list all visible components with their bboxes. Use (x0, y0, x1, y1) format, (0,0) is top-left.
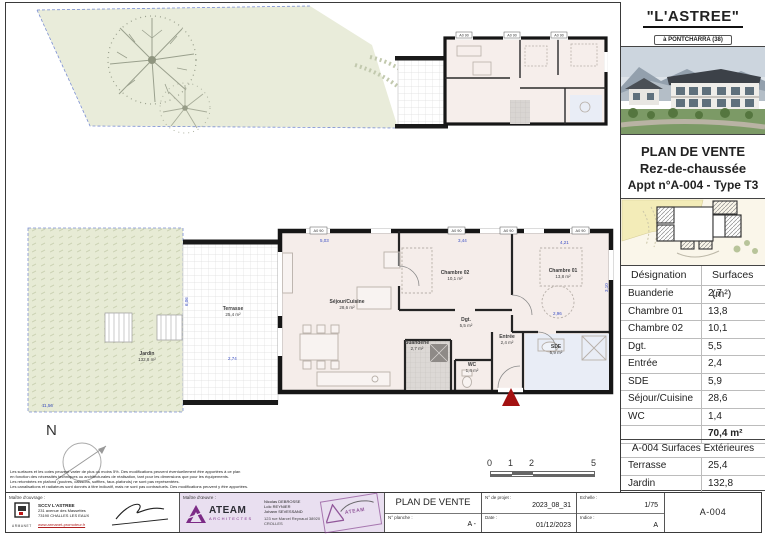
floor-plan-drawing: A0 90 A0 90 A0 90 (5, 2, 620, 492)
plan-de-vente-sheet: A0 90 A0 90 A0 90 (0, 0, 768, 540)
project-title-box: "L'ASTREE" à PONTCHARRA (38) (621, 2, 765, 47)
terrasse-area (183, 240, 278, 406)
owner-label: Maître d'ouvrage : (9, 495, 45, 500)
svg-text:A0 90: A0 90 (554, 34, 563, 38)
armanet-logo-icon (14, 502, 30, 524)
doc-title-cell: PLAN DE VENTE N° planche : A - (384, 493, 481, 532)
room-label-sejour: Séjour/Cuisine28,6 m² (307, 300, 387, 310)
dim-label: 2,96 (553, 311, 562, 316)
dim-label: 2,74 (228, 356, 237, 361)
project-title: "L'ASTREE" (643, 8, 744, 28)
exterior-table-title: A-004 Surfaces Extérieures (621, 440, 765, 458)
echelle-value: 1/75 (644, 502, 658, 509)
planche-label: N° planche : (388, 515, 413, 520)
svg-text:A0 90: A0 90 (314, 229, 324, 233)
sidebar: "L'ASTREE" à PONTCHARRA (38) (620, 2, 765, 492)
room-label-chambre02: Chambre 0210,1 m² (415, 271, 495, 281)
exterior-surfaces-table: A-004 Surfaces Extérieures Terrasse25,4 … (621, 439, 765, 491)
sheet-ref-cell: A-004 (664, 493, 761, 532)
room-label-buanderie: Buanderie2,7 m² (397, 341, 437, 351)
dim-label: 3,44 (458, 238, 467, 243)
sheet-ref: A-004 (665, 507, 761, 517)
dim-label: 3,10 (604, 283, 609, 292)
window-tag: A0 90 (500, 227, 517, 234)
architect-stamp: ATEAM (320, 493, 382, 534)
table-row: Buanderie2,7 (621, 286, 765, 304)
architect-cell: Maître d'œuvre : ATEAM ARCHITECTES Nicol… (179, 493, 384, 532)
indice-value: A (653, 522, 658, 529)
window-tag: A0 90 (456, 32, 472, 38)
building-photo (621, 47, 765, 135)
architect-names: Nicolas DEBROSSE Loïc REYNIER Johann SEV… (264, 499, 324, 526)
room-label-wc: WC1,4 m² (452, 363, 492, 373)
echelle-label: Echelle : (580, 495, 597, 500)
doc-type: PLAN DE VENTE (621, 144, 765, 159)
upper-garden (37, 6, 441, 133)
dim-label: 6,06 (184, 297, 189, 306)
project-number-cell: N° de projet : 2023_08_31 Date : 01/12/2… (481, 493, 576, 532)
projet-label: N° de projet : (485, 495, 511, 500)
room-label-sde: SDE5,9 m² (536, 345, 576, 355)
window-tag: A0 90 (310, 227, 327, 234)
room-label-dgt: Dgt.5,5 m² (446, 318, 486, 328)
table-row: Séjour/Cuisine28,6 (621, 391, 765, 409)
table-header: Désignation Surfaces (m²) (621, 266, 765, 286)
projet-value: 2023_08_31 (532, 502, 571, 509)
apartment-plan: A0 90 A0 90 A0 90 A0 90 (278, 227, 613, 406)
window-tag: A0 90 (572, 227, 589, 234)
table-row: Dgt.5,5 (621, 339, 765, 357)
scale-number: 5 (591, 458, 596, 468)
window-tag: A0 90 (504, 32, 520, 38)
room-label-chambre01: Chambre 0113,8 m² (523, 269, 603, 279)
architect-label: Maître d'œuvre : (183, 495, 216, 500)
window-tag: A0 90 (551, 32, 567, 38)
disclaimer-text: Les surfaces et les cotes peuvent varier… (10, 469, 340, 489)
upper-floor-plan: A0 90 A0 90 A0 90 (395, 32, 608, 129)
dim-label: 4,21 (560, 240, 569, 245)
table-row: Chambre 0113,8 (621, 304, 765, 322)
svg-text:A0 90: A0 90 (507, 34, 516, 38)
svg-text:A0 90: A0 90 (459, 34, 468, 38)
owner-cell: Maître d'ouvrage : ARMANET SCCV L'ASTREE… (6, 493, 179, 532)
owner-signature (110, 499, 172, 529)
date-label: Date : (485, 515, 497, 520)
scale-bar: 0 1 2 5 (483, 458, 601, 484)
scale-number: 2 (529, 458, 534, 468)
jardin-area (28, 228, 183, 412)
room-label-jardin: Jardin132,8 m² (107, 352, 187, 362)
room-label-terrasse: Terrasse25,4 m² (193, 307, 273, 317)
doc-title: PLAN DE VENTE (385, 497, 481, 508)
ateam-logo-text: ATEAM ARCHITECTES (209, 505, 253, 521)
north-label: N (46, 422, 57, 439)
scale-number: 1 (508, 458, 513, 468)
owner-url: www.armanet-promoteur.fr (38, 522, 108, 527)
apartment-ref: Appt n°A-004 - Type T3 (621, 178, 765, 192)
table-row: WC1,4 (621, 409, 765, 427)
date-value: 01/12/2023 (536, 522, 571, 529)
dim-label: 5,03 (320, 238, 329, 243)
table-row: Entrée2,4 (621, 356, 765, 374)
indice-label: Indice : (580, 515, 595, 520)
planche-value: A - (467, 521, 476, 528)
svg-text:A0 90: A0 90 (576, 229, 586, 233)
floor-name: Rez-de-chaussée (621, 161, 765, 176)
surfaces-table: Désignation Surfaces (m²) Buanderie2,7 C… (621, 266, 765, 434)
table-row: SDE5,9 (621, 374, 765, 392)
armanet-logo-text: ARMANET (12, 524, 32, 528)
ateam-logo-icon (186, 504, 206, 524)
owner-details: SCCV L'ASTREE 231 avenue des Massettes 7… (38, 503, 108, 527)
table-row: Chambre 0210,1 (621, 321, 765, 339)
table-row: Jardin132,8 (621, 476, 765, 493)
svg-text:A0 90: A0 90 (504, 229, 514, 233)
site-location-plan (621, 199, 765, 266)
room-label-entree: Entrée2,4 m² (487, 335, 527, 345)
window-tag: A0 90 (448, 227, 465, 234)
dim-label: 11,56 (42, 403, 53, 408)
scale-number: 0 (487, 458, 492, 468)
title-block: Maître d'ouvrage : ARMANET SCCV L'ASTREE… (5, 492, 762, 533)
plan-title-box: PLAN DE VENTE Rez-de-chaussée Appt n°A-0… (621, 135, 765, 199)
scale-cell: Echelle : 1/75 Indice : A (576, 493, 664, 532)
svg-text:A0 90: A0 90 (452, 229, 462, 233)
table-row: Terrasse25,4 (621, 458, 765, 476)
project-location: à PONTCHARRA (38) (654, 35, 732, 45)
